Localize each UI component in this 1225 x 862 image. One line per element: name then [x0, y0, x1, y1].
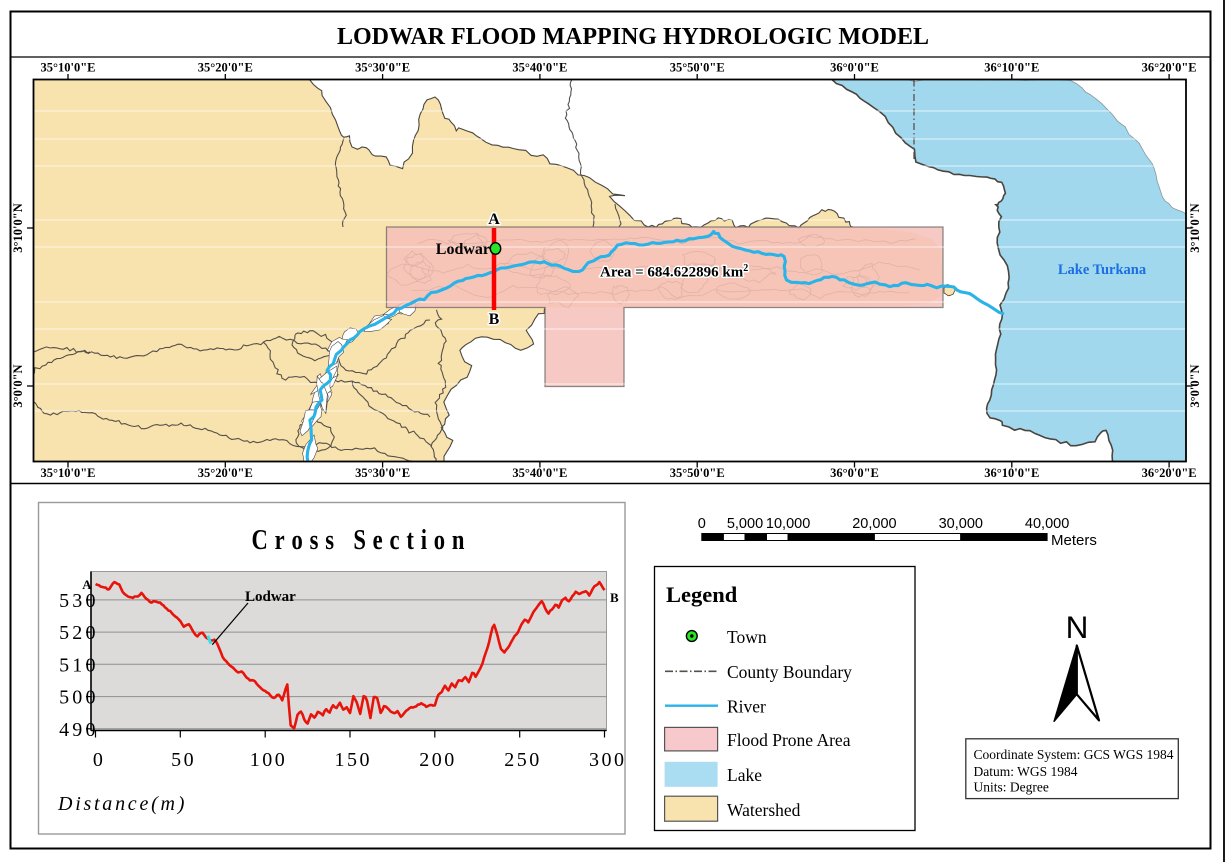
svg-text:510: 510 — [59, 654, 95, 676]
svg-text:100: 100 — [250, 749, 285, 771]
svg-text:3°10'0"N: 3°10'0"N — [1188, 203, 1202, 252]
svg-text:520: 520 — [59, 622, 95, 644]
svg-text:Meters: Meters — [1051, 532, 1097, 549]
svg-text:36°0'0"E: 36°0'0"E — [830, 466, 879, 480]
svg-text:Legend: Legend — [666, 582, 738, 607]
svg-text:3°10'0"N: 3°10'0"N — [11, 203, 25, 252]
svg-text:Datum: WGS 1984: Datum: WGS 1984 — [974, 764, 1078, 779]
svg-text:35°20'0"E: 35°20'0"E — [198, 466, 253, 480]
svg-text:N: N — [1066, 609, 1089, 645]
svg-text:300: 300 — [589, 749, 624, 771]
svg-text:36°10'0"E: 36°10'0"E — [984, 61, 1039, 75]
svg-text:Units: Degree: Units: Degree — [974, 780, 1049, 795]
svg-text:35°40'0"E: 35°40'0"E — [512, 61, 567, 75]
svg-text:Flood Prone Area: Flood Prone Area — [727, 730, 851, 750]
svg-text:Lodwar: Lodwar — [436, 241, 490, 258]
svg-text:County Boundary: County Boundary — [727, 662, 852, 682]
svg-text:Lake Turkana: Lake Turkana — [1058, 262, 1147, 278]
svg-text:0: 0 — [698, 516, 706, 532]
svg-text:30,000: 30,000 — [939, 516, 983, 532]
svg-text:Watershed: Watershed — [727, 800, 801, 820]
svg-text:A: A — [82, 577, 92, 592]
svg-text:490: 490 — [59, 719, 95, 741]
svg-text:LODWAR FLOOD MAPPING HYDROLOGI: LODWAR FLOOD MAPPING HYDROLOGIC MODEL — [337, 24, 929, 50]
svg-text:A: A — [488, 211, 500, 228]
svg-text:35°50'0"E: 35°50'0"E — [670, 61, 725, 75]
svg-text:35°30'0"E: 35°30'0"E — [355, 61, 410, 75]
svg-text:Distance(m): Distance(m) — [57, 793, 185, 815]
svg-text:20,000: 20,000 — [852, 516, 896, 532]
svg-text:35°20'0"E: 35°20'0"E — [198, 61, 253, 75]
svg-text:150: 150 — [335, 749, 370, 771]
svg-text:Area = 684.622896 km2: Area = 684.622896 km2 — [600, 263, 748, 281]
svg-text:530: 530 — [59, 590, 95, 612]
svg-text:10,000: 10,000 — [766, 516, 810, 532]
svg-text:200: 200 — [419, 749, 454, 771]
svg-text:B: B — [610, 590, 619, 605]
svg-text:Lake: Lake — [727, 765, 762, 785]
svg-text:B: B — [489, 311, 500, 328]
svg-text:River: River — [727, 697, 766, 717]
svg-text:40,000: 40,000 — [1025, 516, 1069, 532]
svg-text:0: 0 — [93, 749, 103, 771]
svg-text:35°10'0"E: 35°10'0"E — [41, 61, 96, 75]
svg-text:35°50'0"E: 35°50'0"E — [670, 466, 725, 480]
svg-text:5,000: 5,000 — [727, 516, 763, 532]
svg-text:36°0'0"E: 36°0'0"E — [830, 61, 879, 75]
svg-text:Coordinate System: GCS WGS 198: Coordinate System: GCS WGS 1984 — [974, 747, 1174, 762]
svg-text:250: 250 — [504, 749, 539, 771]
svg-text:35°30'0"E: 35°30'0"E — [355, 466, 410, 480]
svg-text:3°0'0"N: 3°0'0"N — [1188, 364, 1202, 407]
svg-text:35°10'0"E: 35°10'0"E — [41, 466, 96, 480]
svg-text:35°40'0"E: 35°40'0"E — [512, 466, 567, 480]
svg-text:36°20'0"E: 36°20'0"E — [1142, 466, 1197, 480]
svg-text:500: 500 — [59, 687, 95, 709]
svg-text:Lodwar: Lodwar — [245, 589, 296, 605]
svg-text:Town: Town — [727, 627, 767, 647]
svg-text:36°20'0"E: 36°20'0"E — [1142, 61, 1197, 75]
svg-text:3°0'0"N: 3°0'0"N — [11, 364, 25, 407]
svg-text:36°10'0"E: 36°10'0"E — [984, 466, 1039, 480]
